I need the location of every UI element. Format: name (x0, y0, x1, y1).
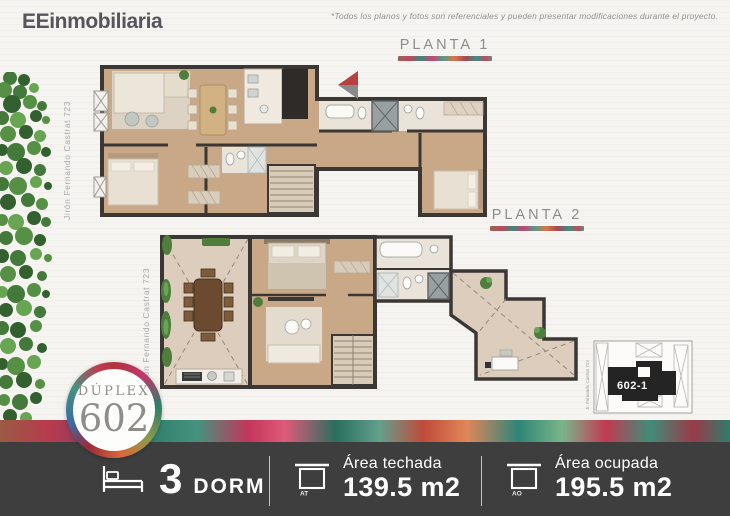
planta1-label: PLANTA 1 (398, 37, 492, 53)
planta1-floorplan (92, 55, 487, 220)
terrace-dining-table (194, 279, 222, 331)
stairs-planta1 (268, 165, 315, 213)
keyplan-street-label: Jr. Fernando Castrat 723 (585, 346, 590, 410)
bed-icon (100, 465, 146, 493)
stat-area-techada: AT Área techada 139.5 m2 (294, 442, 460, 516)
badge-number: 602 (79, 400, 150, 437)
disclaimer-text: *Todos los planos y fotos son referencia… (331, 11, 718, 21)
company-logo: EEinmobiliaria (22, 10, 162, 34)
desk (492, 357, 518, 370)
planta2-floorplan (140, 229, 582, 421)
area-ocupada-label: Área ocupada (555, 455, 672, 473)
area-techada-value: 139.5 m2 (343, 473, 460, 503)
bathtub (326, 105, 354, 118)
planta2-label: PLANTA 2 (490, 207, 584, 223)
stairs-planta2 (332, 335, 374, 385)
stat-area-ocupada: AO Área ocupada 195.5 m2 (506, 442, 672, 516)
duplex-badge: DÚPLEX 602 (66, 362, 162, 458)
area-ocupada-abbr: AO (512, 491, 522, 498)
sofa (114, 73, 164, 113)
bathtub-2 (380, 242, 422, 257)
area-techada-icon: AT (294, 461, 330, 497)
street-label-planta1: Jirón Fernando Castrat 723 (62, 70, 72, 220)
logo-rest: inmobiliaria (49, 10, 162, 33)
logo-ee: EE (22, 10, 49, 33)
stats-divider-1 (269, 456, 270, 506)
keyplan-map: 602-1 (592, 337, 696, 417)
stats-divider-2 (481, 456, 482, 506)
dorm-unit: DORM (193, 475, 265, 499)
planta2-title: PLANTA 2 (490, 207, 584, 231)
dorm-count: 3 (159, 460, 182, 498)
area-ocupada-value: 195.5 m2 (555, 473, 672, 503)
area-techada-label: Área techada (343, 455, 460, 473)
sofa-2 (268, 345, 320, 363)
keyplan-unit-label: 602-1 (617, 380, 648, 392)
hedge-plant-image (0, 72, 56, 430)
north-arrow-icon (338, 71, 358, 99)
brochure-page: EEinmobiliaria *Todos los planos y fotos… (0, 0, 730, 516)
area-techada-abbr: AT (300, 491, 308, 498)
area-ocupada-icon: AO (506, 461, 542, 497)
kitchen-appliances (282, 69, 308, 119)
